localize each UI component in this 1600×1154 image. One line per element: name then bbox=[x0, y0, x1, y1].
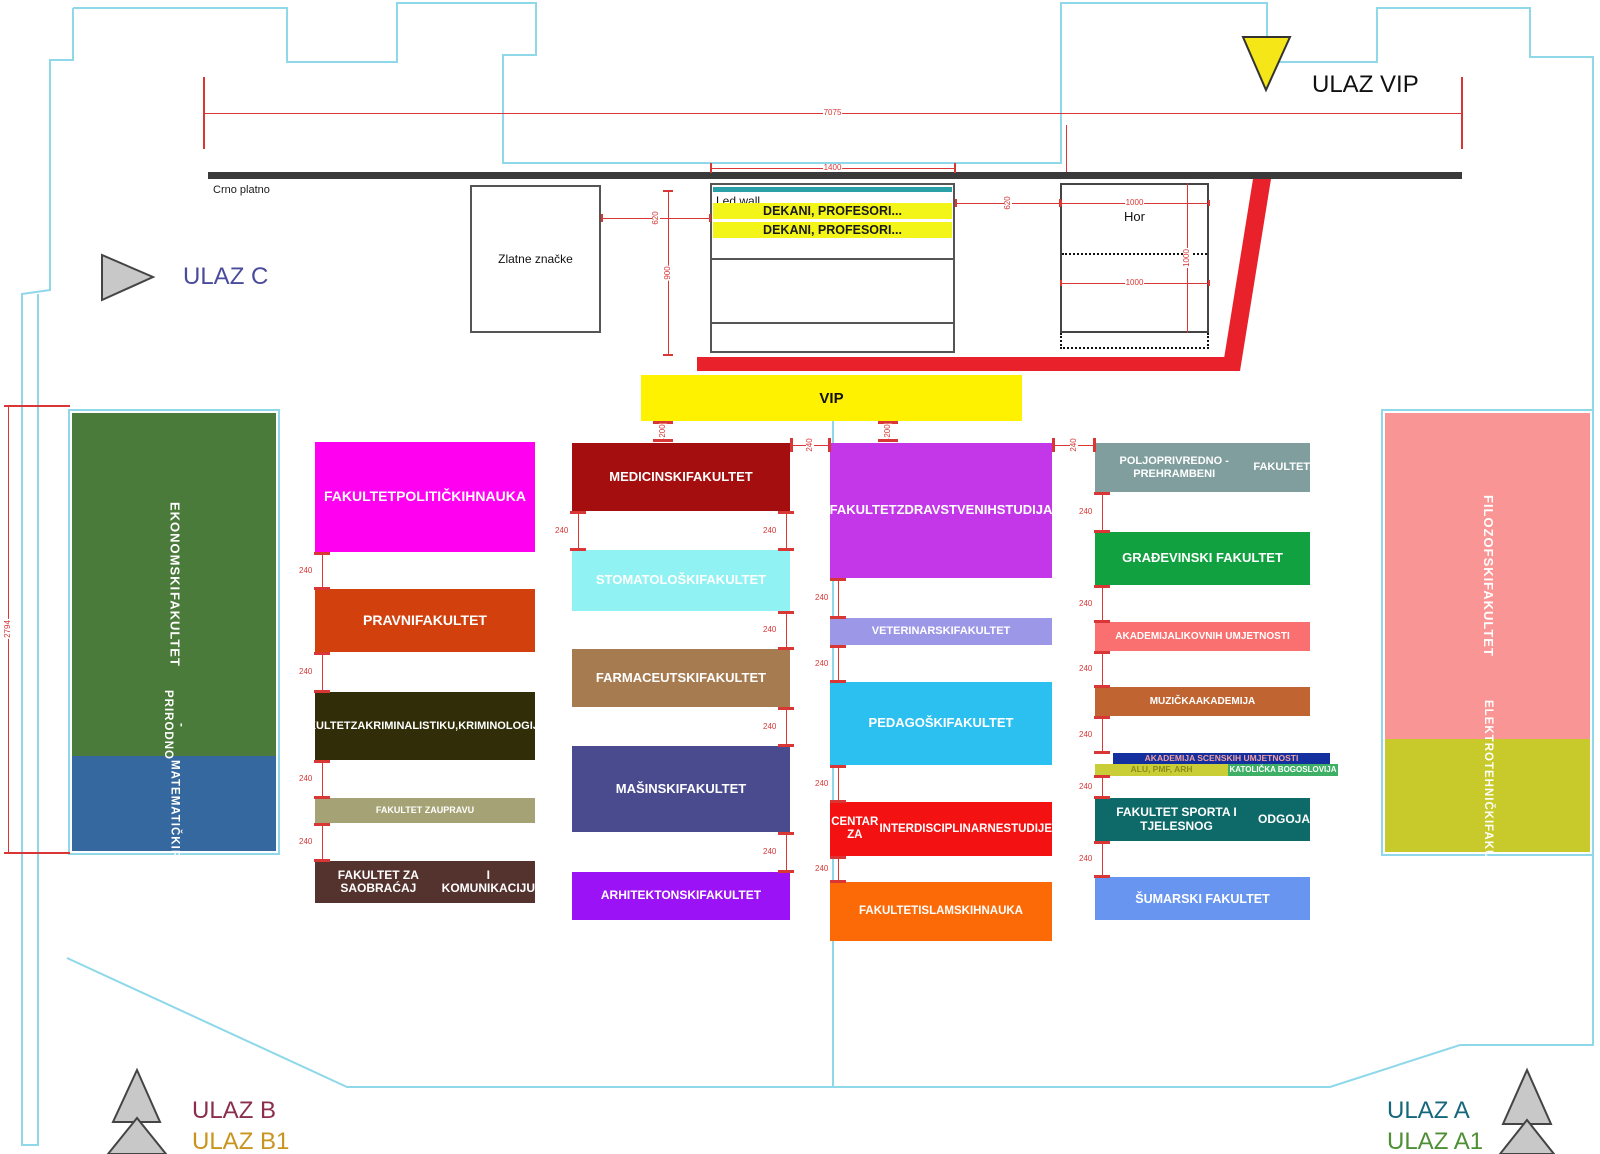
faculty-block-label: FAKULTET bbox=[1253, 461, 1310, 473]
faculty-block-label: FAKULTET bbox=[947, 716, 1014, 731]
dim-left-height-2794-cap-0 bbox=[4, 405, 70, 407]
gap200-0-label: 200 bbox=[659, 423, 667, 438]
faculty-block-zdravstvenih: FAKULTETZDRAVSTVENIHSTUDIJA bbox=[830, 443, 1052, 578]
faculty-block-label: FAKULTET bbox=[679, 782, 746, 797]
gap240-16-line bbox=[1102, 716, 1103, 753]
gap240-6-cap-bot bbox=[778, 647, 794, 650]
faculty-block-pravni: PRAVNIFAKULTET bbox=[315, 589, 535, 652]
faculty-block-label: FAKULTET bbox=[699, 671, 766, 686]
faculty-block-label: MAŠINSKI bbox=[616, 782, 680, 797]
gap240-4-cap-bot bbox=[570, 548, 586, 551]
gap200-0-cap-bot bbox=[653, 439, 673, 442]
gap240-14-line bbox=[1102, 585, 1103, 622]
gap240-3-label: 240 bbox=[298, 838, 313, 846]
stage-inner-line-2 bbox=[712, 322, 953, 324]
venue-seating-plan: Crno platno Led wall DEKANI, PROFESORI..… bbox=[0, 0, 1600, 1154]
hor-label: Hor bbox=[1124, 209, 1145, 224]
faculty-block-label: FAKULTET bbox=[859, 905, 918, 918]
faculty-block-poljoprivredno: POLJOPRIVREDNO - PREHRAMBENIFAKULTET bbox=[1095, 443, 1310, 492]
ulaz-c-label: ULAZ C bbox=[183, 263, 268, 291]
faculty-block-label: AKADEMIJA bbox=[1115, 631, 1174, 642]
faculty-block-label: FAKULTET bbox=[324, 489, 396, 505]
gap240-3-cap-top bbox=[314, 823, 330, 826]
ulaz-a-triangle-lower-icon bbox=[1500, 1120, 1554, 1154]
ulaz-b1-label: ULAZ B1 bbox=[192, 1128, 289, 1154]
gap240-18-label: 240 bbox=[1078, 855, 1093, 863]
gapH240-1-label: 240 bbox=[1070, 437, 1078, 452]
gap240-1-label: 240 bbox=[298, 668, 313, 676]
dim-hor-1000-top-tick-b bbox=[1208, 200, 1210, 206]
gap240-2-cap-bot bbox=[314, 796, 330, 799]
gap240-0-line bbox=[322, 552, 323, 589]
faculty-block-label: FILOZOFSKI bbox=[1480, 495, 1495, 582]
faculty-block-label: ALU, PMF, ARH bbox=[1130, 765, 1192, 775]
faculty-block-label: FAKULTET bbox=[294, 720, 351, 732]
gap240-0-cap-top bbox=[314, 552, 330, 555]
gap240-5-label: 240 bbox=[762, 527, 777, 535]
gap240-7-cap-top bbox=[778, 707, 794, 710]
gap240-4-cap-top bbox=[570, 511, 586, 514]
faculty-block-label: ZA bbox=[351, 720, 366, 732]
gap240-2-label: 240 bbox=[298, 775, 313, 783]
gap240-8-line bbox=[786, 832, 787, 872]
gap240-8-label: 240 bbox=[762, 848, 777, 856]
faculty-block-label: FAKULTET ZA bbox=[376, 805, 437, 815]
gap240-12-cap-top bbox=[830, 856, 846, 859]
faculty-block-centar-interdisciplinarne: CENTAR ZAINTERDISCIPLINARNESTUDIJE bbox=[830, 802, 1052, 856]
vip-zone: VIP bbox=[641, 375, 1022, 421]
gap240-18-cap-top bbox=[1094, 841, 1110, 844]
faculty-block-sumarski: ŠUMARSKI FAKULTET bbox=[1095, 877, 1310, 920]
faculty-block-label: UPRAVU bbox=[437, 805, 474, 815]
gap240-11-label: 240 bbox=[814, 780, 829, 788]
gap240-15-label: 240 bbox=[1078, 665, 1093, 673]
faculty-block-prirodno-matematicki: PRIRODNO -MATEMATIČKIFAKULTET bbox=[72, 756, 276, 851]
gap240-6-label: 240 bbox=[762, 626, 777, 634]
faculty-block-label: FAKULTET bbox=[1481, 824, 1494, 891]
stage-inner-line-1 bbox=[712, 258, 953, 260]
hor-dashed-extension bbox=[1060, 333, 1209, 349]
dim-stage-height-900-label: 900 bbox=[664, 265, 672, 280]
gap240-4-label: 240 bbox=[554, 527, 569, 535]
dim-gap-620-right-tick-a bbox=[955, 199, 957, 207]
faculty-block-label: ARHITEKTONSKI bbox=[601, 889, 699, 902]
faculty-block-label: FAKULTET bbox=[954, 625, 1011, 637]
faculty-block-label: STUDIJA bbox=[997, 503, 1053, 518]
faculty-block-label: NAUKA bbox=[475, 489, 526, 505]
dim-hor-1000-mid-label: 1000 bbox=[1125, 279, 1145, 287]
ulaz-c-triangle-icon bbox=[102, 255, 153, 300]
gap240-1-line bbox=[322, 652, 323, 692]
faculty-block-label: FAKULTET bbox=[830, 503, 897, 518]
crno-platno-label: Crno platno bbox=[213, 184, 270, 196]
venue-outline-left-edge bbox=[22, 8, 73, 1145]
faculty-block-filozofski: FILOZOFSKIFAKULTET bbox=[1385, 413, 1590, 739]
faculty-block-politickih-nauka: FAKULTETPOLITIČKIHNAUKA bbox=[315, 442, 535, 552]
faculty-block-label: FAKULTET bbox=[168, 850, 181, 917]
faculty-block-label: AKADEMIJA bbox=[1196, 696, 1255, 707]
faculty-block-label: VETERINARSKI bbox=[872, 625, 954, 637]
gap240-1-cap-bot bbox=[314, 690, 330, 693]
gap240-17-line bbox=[1102, 775, 1103, 798]
faculty-block-farmaceutski: FARMACEUTSKIFAKULTET bbox=[572, 649, 790, 707]
gap240-2-cap-top bbox=[314, 760, 330, 763]
faculty-block-label: LIKOVNIH UMJETNOSTI bbox=[1175, 631, 1290, 642]
faculty-block-muzicka: MUZIČKAAKADEMIJA bbox=[1095, 687, 1310, 716]
gap240-3-line bbox=[322, 823, 323, 861]
gap240-16-cap-top bbox=[1094, 716, 1110, 719]
gap240-9-cap-bot bbox=[830, 616, 846, 619]
gap240-0-label: 240 bbox=[298, 567, 313, 575]
faculty-block-label: KATOLIČKA BOGOSLOVIJA bbox=[1230, 766, 1337, 775]
faculty-block-label: FAKULTET bbox=[699, 573, 766, 588]
faculty-block-uprava: FAKULTET ZAUPRAVU bbox=[315, 798, 535, 823]
gap240-5-cap-top bbox=[778, 511, 794, 514]
gap240-14-cap-bot bbox=[1094, 620, 1110, 623]
faculty-block-label: MATEMATIČKI bbox=[168, 760, 181, 850]
gap240-3-cap-bot bbox=[314, 859, 330, 862]
gap240-10-cap-top bbox=[830, 645, 846, 648]
gap240-18-line bbox=[1102, 841, 1103, 877]
dim-stage-width-1400-tick-b bbox=[954, 163, 956, 173]
gapH240-0-cap-r bbox=[828, 438, 831, 452]
stage-row-dekani-2: DEKANI, PROFESORI... bbox=[713, 222, 952, 238]
faculty-block-label: ZDRAVSTVENIH bbox=[897, 503, 997, 518]
faculty-block-alu-pmf-arh: ALU, PMF, ARH bbox=[1095, 764, 1228, 776]
ulaz-a-label: ULAZ A bbox=[1387, 1097, 1470, 1125]
faculty-block-label: STOMATOLOŠKI bbox=[596, 573, 699, 588]
faculty-block-label: FAKULTET bbox=[1480, 582, 1495, 657]
dim-width-7075-tick-a bbox=[203, 77, 205, 149]
faculty-block-label: I KOMUNIKACIJU bbox=[442, 869, 535, 896]
ulaz-vip-triangle-icon bbox=[1243, 37, 1290, 90]
dim-tick-1066-line bbox=[1066, 125, 1067, 172]
faculty-block-kriminalistika: FAKULTETZAKRIMINALISTIKU,KRIMINOLOGIJU..… bbox=[315, 692, 535, 760]
gap240-11-cap-bot bbox=[830, 800, 846, 803]
faculty-block-gradjevinski: GRAĐEVINSKI FAKULTET bbox=[1095, 532, 1310, 585]
faculty-block-label: KRIMINOLOGIJU... bbox=[458, 720, 556, 732]
faculty-block-label: CENTAR ZA bbox=[830, 816, 879, 842]
dim-left-height-2794-label: 2794 bbox=[4, 619, 12, 639]
gap240-14-cap-top bbox=[1094, 585, 1110, 588]
dim-stage-height-900-tick-b bbox=[663, 354, 673, 356]
stage-row-dekani-1: DEKANI, PROFESORI... bbox=[713, 203, 952, 219]
gap240-6-cap-top bbox=[778, 611, 794, 614]
gap240-0-cap-bot bbox=[314, 587, 330, 590]
gap240-12-line bbox=[838, 856, 839, 882]
faculty-block-sporta: FAKULTET SPORTA I TJELESNOGODGOJA bbox=[1095, 798, 1310, 841]
gap240-10-line bbox=[838, 645, 839, 682]
dim-hor-1000-top-tick-a bbox=[1060, 200, 1062, 206]
gap240-15-cap-bot bbox=[1094, 685, 1110, 688]
faculty-block-label: STUDIJE bbox=[1003, 823, 1052, 836]
ulaz-vip-label: ULAZ VIP bbox=[1312, 71, 1419, 99]
gap240-18-cap-bot bbox=[1094, 875, 1110, 878]
zlatne-znacke-label: Zlatne značke bbox=[498, 252, 573, 266]
gap240-14-label: 240 bbox=[1078, 600, 1093, 608]
gap240-13-cap-top bbox=[1094, 492, 1110, 495]
red-carpet-diagonal bbox=[1222, 179, 1271, 371]
gap240-13-line bbox=[1102, 492, 1103, 532]
red-carpet-front bbox=[697, 357, 1232, 371]
faculty-block-label: ELEKTROTEHNIČKI bbox=[1481, 700, 1494, 824]
dim-gap-620-left-label: 620 bbox=[652, 210, 660, 225]
ulaz-b-triangle-upper-icon bbox=[113, 1070, 160, 1122]
gap240-2-line bbox=[322, 760, 323, 798]
gap240-7-line bbox=[786, 707, 787, 746]
gapH240-1-cap-l bbox=[1052, 438, 1055, 452]
gap240-5-line bbox=[786, 511, 787, 550]
dim-stage-width-1400-tick-a bbox=[710, 163, 712, 173]
faculty-block-likovnih: AKADEMIJALIKOVNIH UMJETNOSTI bbox=[1095, 622, 1310, 651]
faculty-block-katolicka-bogoslovija: KATOLIČKA BOGOSLOVIJA bbox=[1228, 764, 1338, 776]
gap240-8-cap-top bbox=[778, 832, 794, 835]
faculty-block-scenskih: AKADEMIJA SCENSKIH UMJETNOSTI bbox=[1113, 753, 1330, 764]
faculty-block-label: ISLAMSKIH bbox=[918, 905, 981, 918]
ulaz-b-label: ULAZ B bbox=[192, 1097, 276, 1125]
faculty-block-elektrotehnicki: ELEKTROTEHNIČKIFAKULTET bbox=[1385, 739, 1590, 852]
gap240-11-line bbox=[838, 765, 839, 802]
faculty-block-label: INTERDISCIPLINARNE bbox=[879, 823, 1003, 836]
gap240-5-cap-bot bbox=[778, 548, 794, 551]
crno-platno-bar bbox=[208, 172, 1462, 179]
gap240-15-line bbox=[1102, 651, 1103, 687]
ulaz-a-triangle-upper-icon bbox=[1503, 1070, 1551, 1124]
faculty-block-saobracaj: FAKULTET ZA SAOBRAĆAJI KOMUNIKACIJU bbox=[315, 861, 535, 903]
gap240-10-label: 240 bbox=[814, 660, 829, 668]
dim-gap-620-left-tick-b bbox=[709, 214, 711, 222]
gap240-12-cap-bot bbox=[830, 880, 846, 883]
faculty-block-label: KRIMINALISTIKU, bbox=[365, 720, 458, 732]
gap240-16-cap-bot bbox=[1094, 751, 1110, 754]
gap240-11-cap-top bbox=[830, 765, 846, 768]
faculty-block-label: FAKULTET SPORTA I TJELESNOG bbox=[1095, 806, 1258, 833]
gapH240-0-label: 240 bbox=[806, 437, 814, 452]
faculty-block-islamskih: FAKULTETISLAMSKIHNAUKA bbox=[830, 882, 1052, 941]
faculty-block-masinski: MAŠINSKIFAKULTET bbox=[572, 746, 790, 832]
dim-gap-620-right-label: 620 bbox=[1004, 195, 1012, 210]
faculty-block-label: FAKULTET bbox=[699, 889, 761, 902]
dim-hor-1000-vert-label: 1000 bbox=[1183, 248, 1191, 268]
dim-width-7075-tick-b bbox=[1461, 77, 1463, 149]
faculty-block-label: PRIRODNO - bbox=[161, 690, 187, 760]
gap240-9-line bbox=[838, 578, 839, 618]
gap240-16-label: 240 bbox=[1078, 731, 1093, 739]
gap240-8-cap-bot bbox=[778, 870, 794, 873]
gap240-10-cap-bot bbox=[830, 680, 846, 683]
dim-hor-1000-mid-tick-a bbox=[1060, 280, 1062, 286]
dim-gap-620-left-tick-a bbox=[601, 214, 603, 222]
gapH240-0-cap-l bbox=[790, 438, 793, 452]
faculty-block-stomatoloski: STOMATOLOŠKIFAKULTET bbox=[572, 550, 790, 611]
gap240-9-cap-top bbox=[830, 578, 846, 581]
faculty-block-label: POLITIČKIH bbox=[396, 489, 475, 505]
gap240-4-line bbox=[578, 511, 579, 550]
faculty-block-veterinarski: VETERINARSKIFAKULTET bbox=[830, 618, 1052, 645]
faculty-block-label: PEDAGOŠKI bbox=[869, 716, 947, 731]
dim-stage-width-1400-label: 1400 bbox=[823, 164, 843, 172]
gap240-15-cap-top bbox=[1094, 651, 1110, 654]
vip-zone-label: VIP bbox=[819, 390, 843, 407]
faculty-block-label: MUZIČKA bbox=[1150, 696, 1196, 707]
gap240-17-label: 240 bbox=[1078, 783, 1093, 791]
dim-hor-1000-top-label: 1000 bbox=[1125, 199, 1145, 207]
faculty-block-label: ŠUMARSKI FAKULTET bbox=[1135, 892, 1270, 906]
faculty-block-arhitektonski: ARHITEKTONSKIFAKULTET bbox=[572, 872, 790, 920]
dim-width-7075-label: 7075 bbox=[823, 109, 843, 117]
ulaz-b-triangle-lower-icon bbox=[108, 1118, 166, 1154]
faculty-block-label: FAKULTET bbox=[415, 613, 487, 629]
gap240-13-cap-bot bbox=[1094, 530, 1110, 533]
zlatne-znacke-box: Zlatne značke bbox=[470, 185, 601, 333]
led-wall-strip bbox=[713, 187, 952, 192]
faculty-block-pedagoski: PEDAGOŠKIFAKULTET bbox=[830, 682, 1052, 765]
gap240-7-cap-bot bbox=[778, 744, 794, 747]
dim-stage-height-900-tick-a bbox=[663, 190, 673, 192]
faculty-block-label: FAKULTET ZA SAOBRAĆAJ bbox=[315, 869, 442, 896]
ulaz-a1-label: ULAZ A1 bbox=[1387, 1128, 1483, 1154]
faculty-block-label: PRAVNI bbox=[363, 613, 415, 629]
faculty-block-label: EKONOMSKI bbox=[167, 502, 182, 591]
dim-left-height-2794-cap-1 bbox=[4, 852, 70, 854]
faculty-block-label: POLJOPRIVREDNO - PREHRAMBENI bbox=[1095, 455, 1253, 480]
gap240-9-label: 240 bbox=[814, 594, 829, 602]
gap240-17-cap-bot bbox=[1094, 796, 1110, 799]
gap240-12-label: 240 bbox=[814, 865, 829, 873]
faculty-block-label: AKADEMIJA SCENSKIH UMJETNOSTI bbox=[1145, 754, 1299, 764]
gap240-13-label: 240 bbox=[1078, 508, 1093, 516]
gap200-1-label: 200 bbox=[884, 423, 892, 438]
faculty-block-label: ODGOJA bbox=[1258, 813, 1310, 826]
gap240-6-line bbox=[786, 611, 787, 649]
faculty-block-medicinski: MEDICINSKIFAKULTET bbox=[572, 443, 790, 511]
gap240-7-label: 240 bbox=[762, 723, 777, 731]
faculty-block-label: FAKULTET bbox=[686, 470, 753, 485]
faculty-block-label: NAUKA bbox=[981, 905, 1023, 918]
gapH240-1-cap-r bbox=[1093, 438, 1096, 452]
faculty-block-label: MEDICINSKI bbox=[609, 470, 686, 485]
gap240-17-cap-top bbox=[1094, 775, 1110, 778]
gap240-1-cap-top bbox=[314, 652, 330, 655]
faculty-block-label: FARMACEUTSKI bbox=[596, 671, 699, 686]
stage-box: Led wall DEKANI, PROFESORI...DEKANI, PRO… bbox=[710, 183, 955, 353]
faculty-block-label: GRAĐEVINSKI FAKULTET bbox=[1122, 551, 1283, 566]
dim-hor-1000-mid-tick-b bbox=[1208, 280, 1210, 286]
faculty-block-label: FAKULTET bbox=[167, 592, 182, 667]
gap200-1-cap-bot bbox=[878, 439, 898, 442]
